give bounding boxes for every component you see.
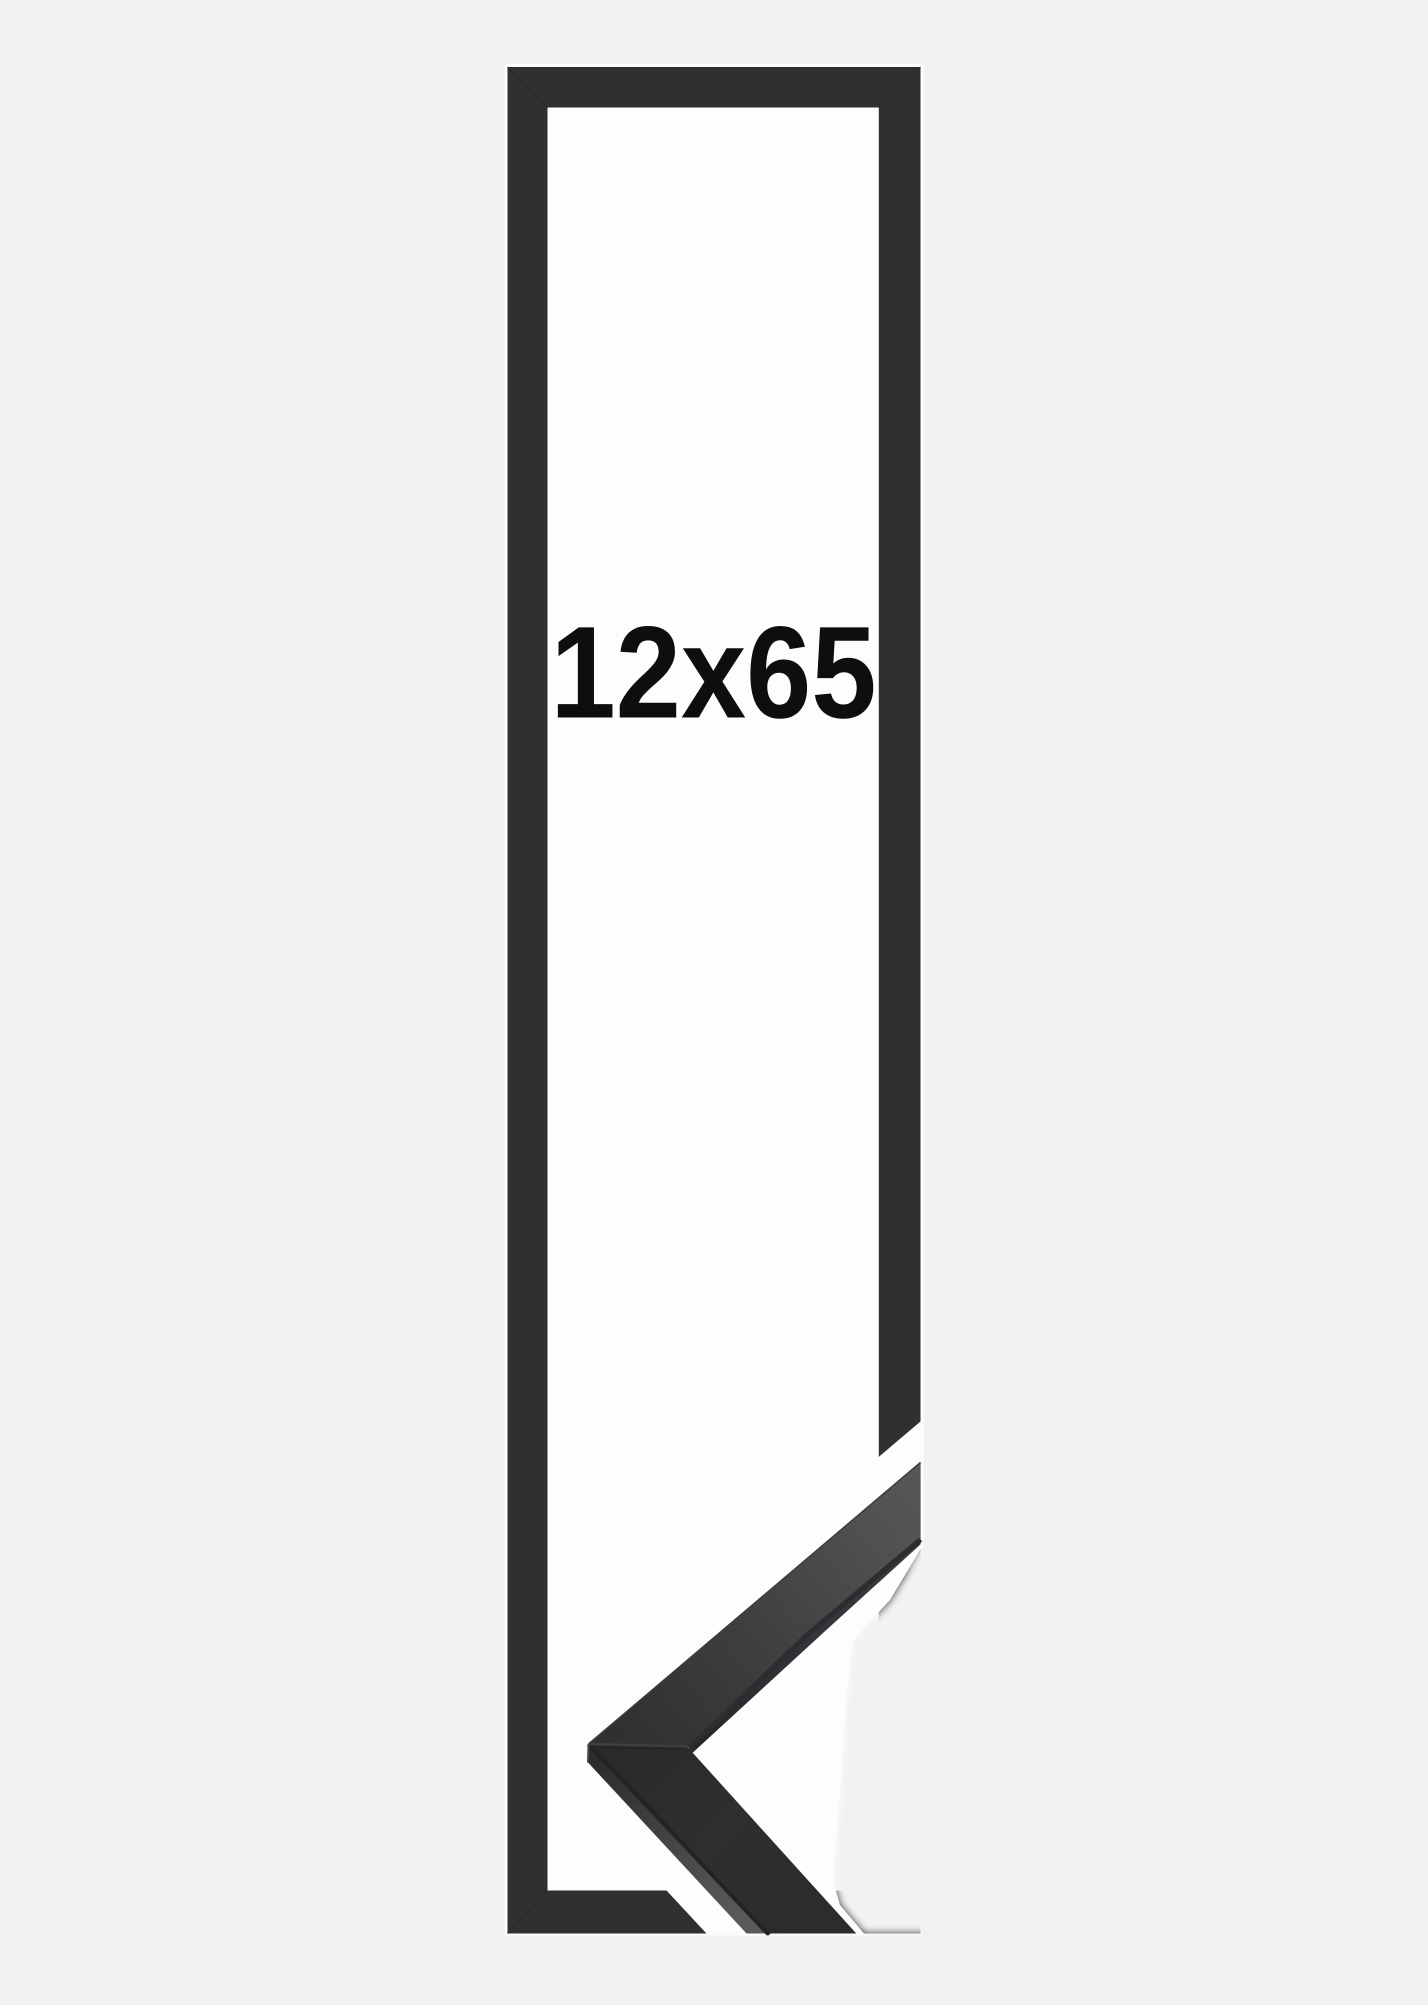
svg-text:12x65: 12x65	[551, 599, 877, 746]
